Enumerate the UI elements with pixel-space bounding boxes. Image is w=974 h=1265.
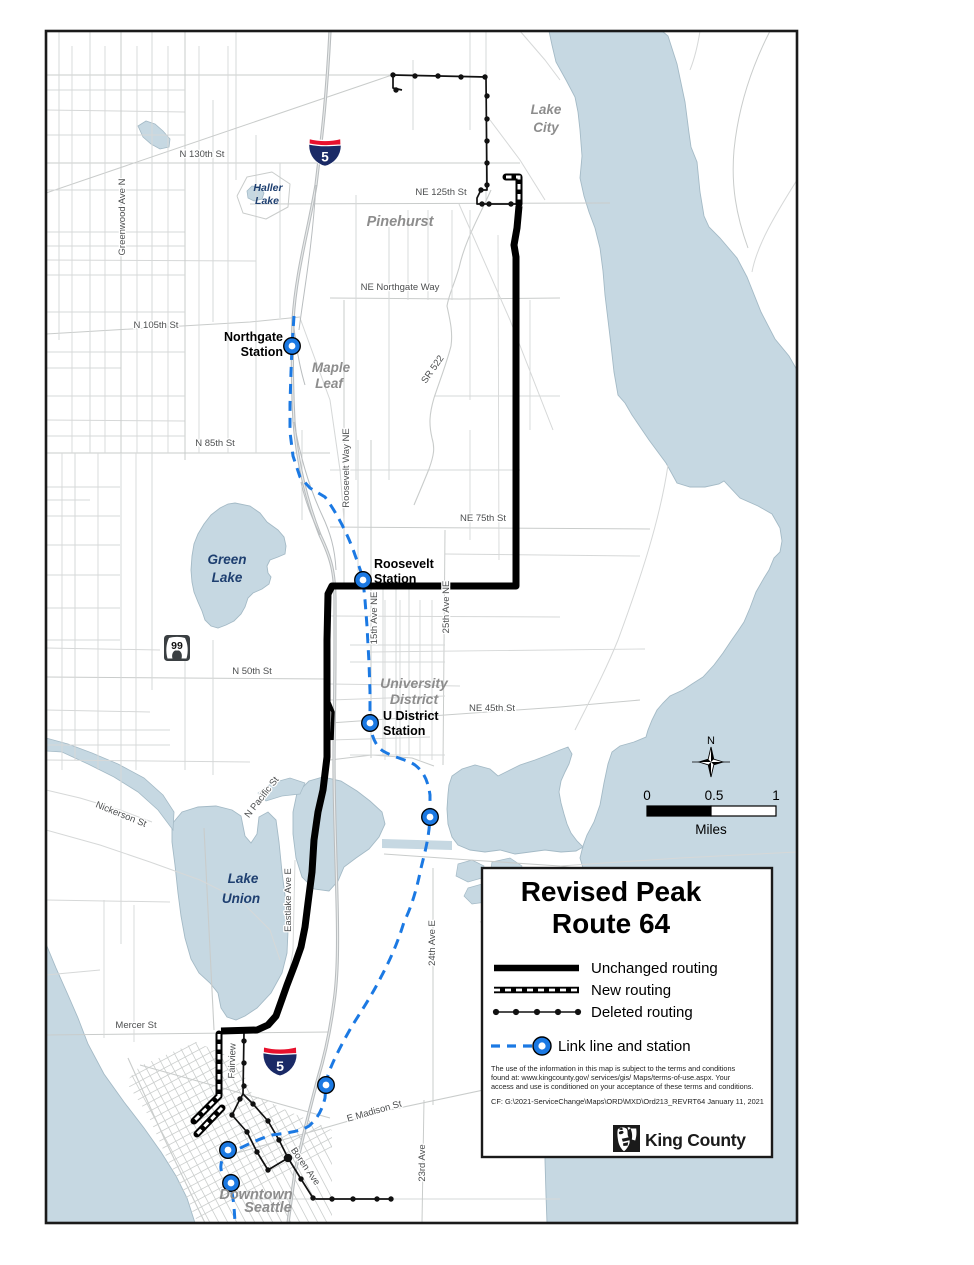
svg-text:23rd Ave: 23rd Ave — [417, 1144, 428, 1181]
svg-text:Link line and station: Link line and station — [558, 1038, 691, 1055]
svg-text:Roosevelt Way NE: Roosevelt Way NE — [341, 428, 352, 507]
svg-text:Revised Peak: Revised Peak — [521, 876, 702, 907]
svg-text:Station: Station — [241, 345, 283, 359]
svg-text:Unchanged routing: Unchanged routing — [591, 960, 718, 977]
svg-text:District: District — [390, 691, 440, 707]
svg-text:5: 5 — [276, 1059, 284, 1075]
svg-text:15th Ave NE: 15th Ave NE — [369, 592, 380, 645]
svg-text:Miles: Miles — [695, 822, 727, 837]
svg-text:1: 1 — [772, 788, 780, 803]
svg-text:Lake: Lake — [531, 102, 562, 117]
svg-text:Eastlake Ave E: Eastlake Ave E — [283, 868, 294, 932]
svg-text:University: University — [380, 675, 449, 691]
svg-text:Greenwood Ave N: Greenwood Ave N — [117, 178, 128, 255]
svg-text:N 50th St: N 50th St — [232, 666, 272, 677]
svg-text:99: 99 — [171, 640, 183, 652]
svg-text:NE 45th St: NE 45th St — [469, 703, 515, 714]
svg-text:NE Northgate Way: NE Northgate Way — [361, 282, 440, 293]
svg-text:25th Ave NE: 25th Ave NE — [441, 581, 452, 634]
svg-text:Route 64: Route 64 — [552, 908, 671, 939]
svg-text:Pinehurst: Pinehurst — [367, 214, 435, 230]
svg-text:Green: Green — [207, 552, 246, 567]
svg-text:The use of the information in: The use of the information in this map i… — [491, 1064, 736, 1073]
svg-text:Lake: Lake — [228, 871, 259, 886]
svg-text:Station: Station — [383, 724, 425, 738]
svg-text:NE 75th St: NE 75th St — [460, 513, 506, 524]
svg-text:City: City — [533, 120, 560, 135]
svg-text:Seattle: Seattle — [244, 1200, 292, 1216]
svg-text:5: 5 — [321, 150, 329, 165]
svg-text:U District: U District — [383, 709, 439, 723]
svg-text:24th Ave E: 24th Ave E — [427, 920, 438, 966]
svg-text:King County: King County — [645, 1130, 746, 1150]
svg-text:N 85th St: N 85th St — [195, 438, 235, 449]
svg-text:NE 125th St: NE 125th St — [415, 187, 467, 198]
svg-text:found at: www.kingcounty.gov/: found at: www.kingcounty.gov/ services/g… — [491, 1073, 731, 1082]
svg-text:Lake: Lake — [255, 195, 279, 207]
svg-text:N 105th St: N 105th St — [134, 320, 179, 331]
svg-text:Roosevelt: Roosevelt — [374, 557, 435, 571]
svg-text:Union: Union — [222, 891, 260, 906]
svg-text:Maple: Maple — [312, 360, 351, 375]
svg-text:Station: Station — [374, 572, 416, 586]
svg-text:N: N — [707, 735, 715, 747]
svg-text:Lake: Lake — [212, 570, 243, 585]
svg-text:Northgate: Northgate — [224, 330, 283, 344]
svg-text:Leaf: Leaf — [315, 376, 344, 391]
svg-text:Haller: Haller — [253, 182, 283, 194]
svg-text:CF: G:\2021-ServiceChange\Map: CF: G:\2021-ServiceChange\Maps\ORD\MXD\O… — [491, 1097, 764, 1106]
svg-text:0: 0 — [643, 788, 651, 803]
svg-text:0.5: 0.5 — [705, 788, 724, 803]
svg-text:Mercer St: Mercer St — [115, 1020, 157, 1031]
svg-text:N 130th St: N 130th St — [180, 149, 225, 160]
svg-text:Fairview: Fairview — [226, 1043, 238, 1079]
svg-text:New routing: New routing — [591, 982, 671, 999]
svg-text:Deleted routing: Deleted routing — [591, 1004, 693, 1021]
svg-text:access and use is conditioned: access and use is conditioned on your ac… — [491, 1082, 753, 1091]
